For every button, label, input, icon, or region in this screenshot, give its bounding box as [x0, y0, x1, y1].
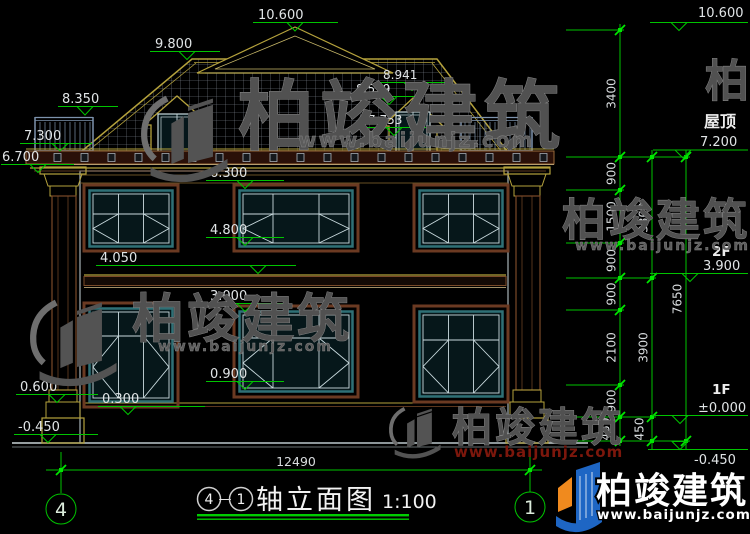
level-peak-right: 10.600	[650, 6, 748, 31]
watermark-topright-partial: 柏竣建筑	[705, 56, 750, 107]
window-1f-right	[414, 306, 508, 402]
dim-3900: 3900	[637, 332, 651, 363]
level-roof-right-text: 7.200	[700, 135, 737, 150]
grid-bubble-1: 1	[515, 480, 545, 522]
level-f1-sill-text: 0.900	[210, 367, 247, 382]
window-2f-left	[84, 185, 178, 251]
watermark-url-bottom: www.baijunjz.com	[454, 443, 623, 461]
level-belt-text: 4.050	[100, 251, 137, 266]
level-ground-right: -0.450	[648, 442, 748, 469]
right-column	[504, 167, 550, 443]
title-block: 4 — 1 轴立面图 1:100	[197, 485, 437, 520]
level-eave-top-text: 7.300	[24, 129, 61, 144]
level-belt: 4.050	[96, 251, 296, 274]
brand-stamp-bottom-right: 柏竣建筑 www.baijunjz.com	[556, 462, 750, 532]
level-roof-right: 屋顶 7.200	[653, 112, 748, 158]
cad-elevation-canvas: 10.600 9.800 8.350 7.300 6.700 8.941 8.5…	[0, 0, 750, 534]
pediment	[197, 27, 393, 73]
watermark-url-midleft: www.baijunjz.com	[158, 339, 333, 355]
level-terrace-rail-text: 8.350	[62, 92, 99, 107]
level-roof-upper-text: 9.800	[155, 37, 192, 52]
watermark-url-top: www.baijunjz.com	[298, 128, 534, 152]
dim-900-a: 900	[605, 162, 619, 185]
belt-course	[84, 275, 506, 288]
level-porch-text: 0.300	[102, 392, 139, 407]
grid-bubble-4-text: 4	[55, 499, 67, 521]
title-underline-2	[197, 519, 409, 520]
roof-label-text: 屋顶	[704, 112, 736, 131]
dim-3400: 3400	[605, 78, 619, 109]
dim-900-c: 900	[605, 283, 619, 306]
dim-2100: 2100	[605, 332, 619, 363]
brand-stamp-url: www.baijunjz.com	[597, 507, 750, 523]
window-2f-right	[414, 185, 508, 251]
watermark-midright: 柏竣建筑 www.baijunjz.com	[562, 195, 750, 254]
level-ground-right-text: -0.450	[694, 453, 736, 468]
brand-stamp-text: 柏竣建筑	[596, 471, 748, 512]
level-ground-left: -0.450	[14, 420, 98, 443]
level-peak-right-text: 10.600	[698, 6, 744, 21]
level-f2-sill-text: 4.800	[210, 223, 247, 238]
dim-7650: 7650	[671, 284, 685, 315]
level-eave-bottom-text: 6.700	[2, 150, 39, 165]
level-2f-text: 3.900	[703, 259, 740, 274]
level-roof-upper: 9.800	[150, 37, 220, 60]
title-axis-end: 1	[237, 492, 246, 508]
level-1f-text: ±0.000	[698, 401, 746, 416]
overall-width-text: 12490	[276, 454, 316, 469]
dim-450-b: 450	[633, 418, 647, 441]
level-1f: 1F ±0.000	[652, 382, 748, 424]
bottom-annotations: 12490 4 1 4 — 1 轴立面图 1:100	[46, 452, 545, 524]
level-terrace-rail: 8.350	[58, 92, 118, 115]
watermark-brand-topright: 柏竣建筑	[705, 56, 750, 107]
grid-bubble-4: 4	[46, 480, 76, 524]
level-peak-text: 10.600	[258, 8, 304, 23]
window-2f-center	[234, 185, 358, 251]
level-ground-left-text: -0.450	[18, 420, 60, 435]
drawing-title: 轴立面图	[256, 485, 376, 516]
title-axis-start: 4	[205, 492, 214, 508]
level-eave-top: 7.300	[20, 129, 92, 151]
grid-bubble-1-text: 1	[524, 497, 536, 519]
drawing-scale: 1:100	[382, 491, 437, 513]
watermark-bottom-center: 柏竣建筑 www.baijunjz.com	[391, 405, 624, 461]
under-eave-trim	[80, 175, 508, 183]
watermark-logo-bottom	[391, 409, 441, 459]
watermark-url-midright: www.baijunjz.com	[575, 238, 750, 254]
f1-label-text: 1F	[712, 382, 731, 398]
title-underline	[197, 514, 409, 516]
